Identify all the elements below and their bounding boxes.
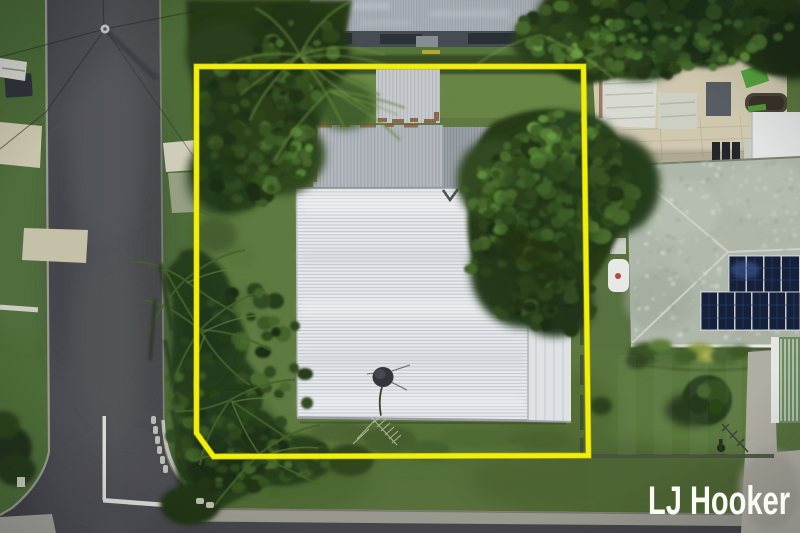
svg-text:LJ Hooker: LJ Hooker <box>648 479 790 523</box>
